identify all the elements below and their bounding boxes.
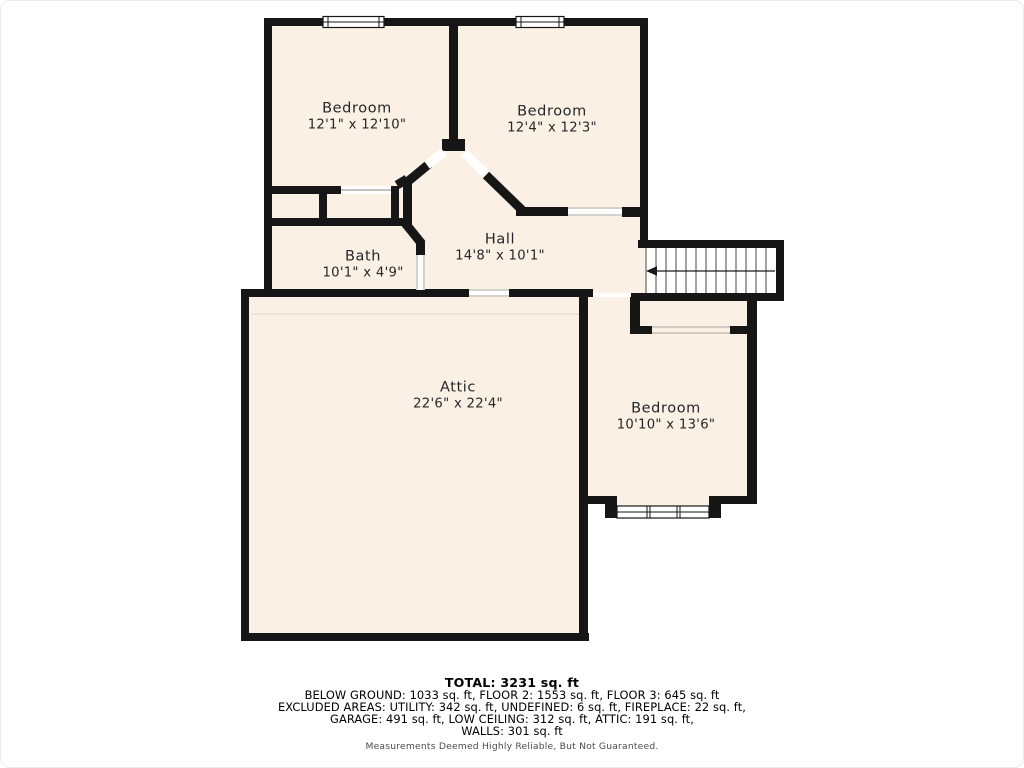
- wall-attic-left: [241, 293, 249, 641]
- room-name: Bath: [322, 249, 403, 266]
- room-label-bath: Bath 10'1" x 4'9": [322, 249, 403, 282]
- wall-bedroom3-jamb-stub-left: [630, 326, 652, 334]
- room-name: Attic: [413, 380, 503, 397]
- floor-plan-page: Bedroom 12'1" x 12'10" Bedroom 12'4" x 1…: [0, 0, 1024, 768]
- room-dims: 22'6" x 22'4": [413, 396, 503, 413]
- room-name: Hall: [455, 232, 545, 249]
- room-dims: 10'10" x 13'6": [617, 417, 716, 434]
- attic-floor: [245, 297, 583, 635]
- summary-disclaimer: Measurements Deemed Highly Reliable, But…: [1, 741, 1023, 752]
- wall-bay-stub-right: [709, 496, 721, 518]
- wall-bedroom2-bottom-right: [622, 207, 648, 217]
- room-name: Bedroom: [507, 104, 597, 121]
- wall-bedroom3-right: [747, 297, 757, 504]
- wall-attic-bottom: [241, 633, 589, 641]
- room-dims: 12'4" x 12'3": [507, 120, 597, 137]
- wall-bath-top: [264, 218, 412, 226]
- room-dims: 10'1" x 4'9": [322, 265, 403, 282]
- wall-closet-right: [391, 186, 399, 220]
- room-label-bedroom-3: Bedroom 10'10" x 13'6": [617, 401, 716, 434]
- room-name: Bedroom: [617, 401, 716, 418]
- wall-closet-top: [264, 186, 341, 194]
- wall-between-bedrooms: [449, 18, 458, 139]
- wall-stairs-right: [776, 240, 784, 301]
- room-dims: 14'8" x 10'1": [455, 248, 545, 265]
- wall-closet-left: [319, 194, 327, 220]
- room-label-hall: Hall 14'8" x 10'1": [455, 232, 545, 265]
- wall-cap: [442, 139, 465, 151]
- wall-stairs-bottom: [631, 293, 784, 301]
- room-label-bedroom-2: Bedroom 12'4" x 12'3": [507, 104, 597, 137]
- bedroom3-floor: [585, 297, 751, 502]
- summary-walls: WALLS: 301 sq. ft: [1, 724, 1023, 738]
- window-bedroom3-bay: [617, 506, 709, 518]
- room-label-attic: Attic 22'6" x 22'4": [413, 380, 503, 413]
- wall-bay-stub-left: [605, 496, 617, 518]
- room-label-bedroom-1: Bedroom 12'1" x 12'10": [308, 101, 407, 134]
- wall-bath-door-jamb: [416, 242, 425, 255]
- wall-bedroom3-jamb-stub-right: [730, 326, 749, 334]
- room-name: Bedroom: [308, 101, 407, 118]
- staircase: [646, 248, 776, 293]
- wall-hall-bottom-left: [241, 289, 469, 297]
- window-bedroom2: [516, 17, 564, 28]
- room-dims: 12'1" x 12'10": [308, 117, 407, 134]
- wall-bedroom2-bottom-left: [516, 207, 568, 216]
- window-bedroom1: [323, 17, 384, 28]
- wall-left-upper: [264, 18, 272, 297]
- wall-attic-right: [579, 293, 588, 641]
- wall-stairs-top: [638, 240, 784, 248]
